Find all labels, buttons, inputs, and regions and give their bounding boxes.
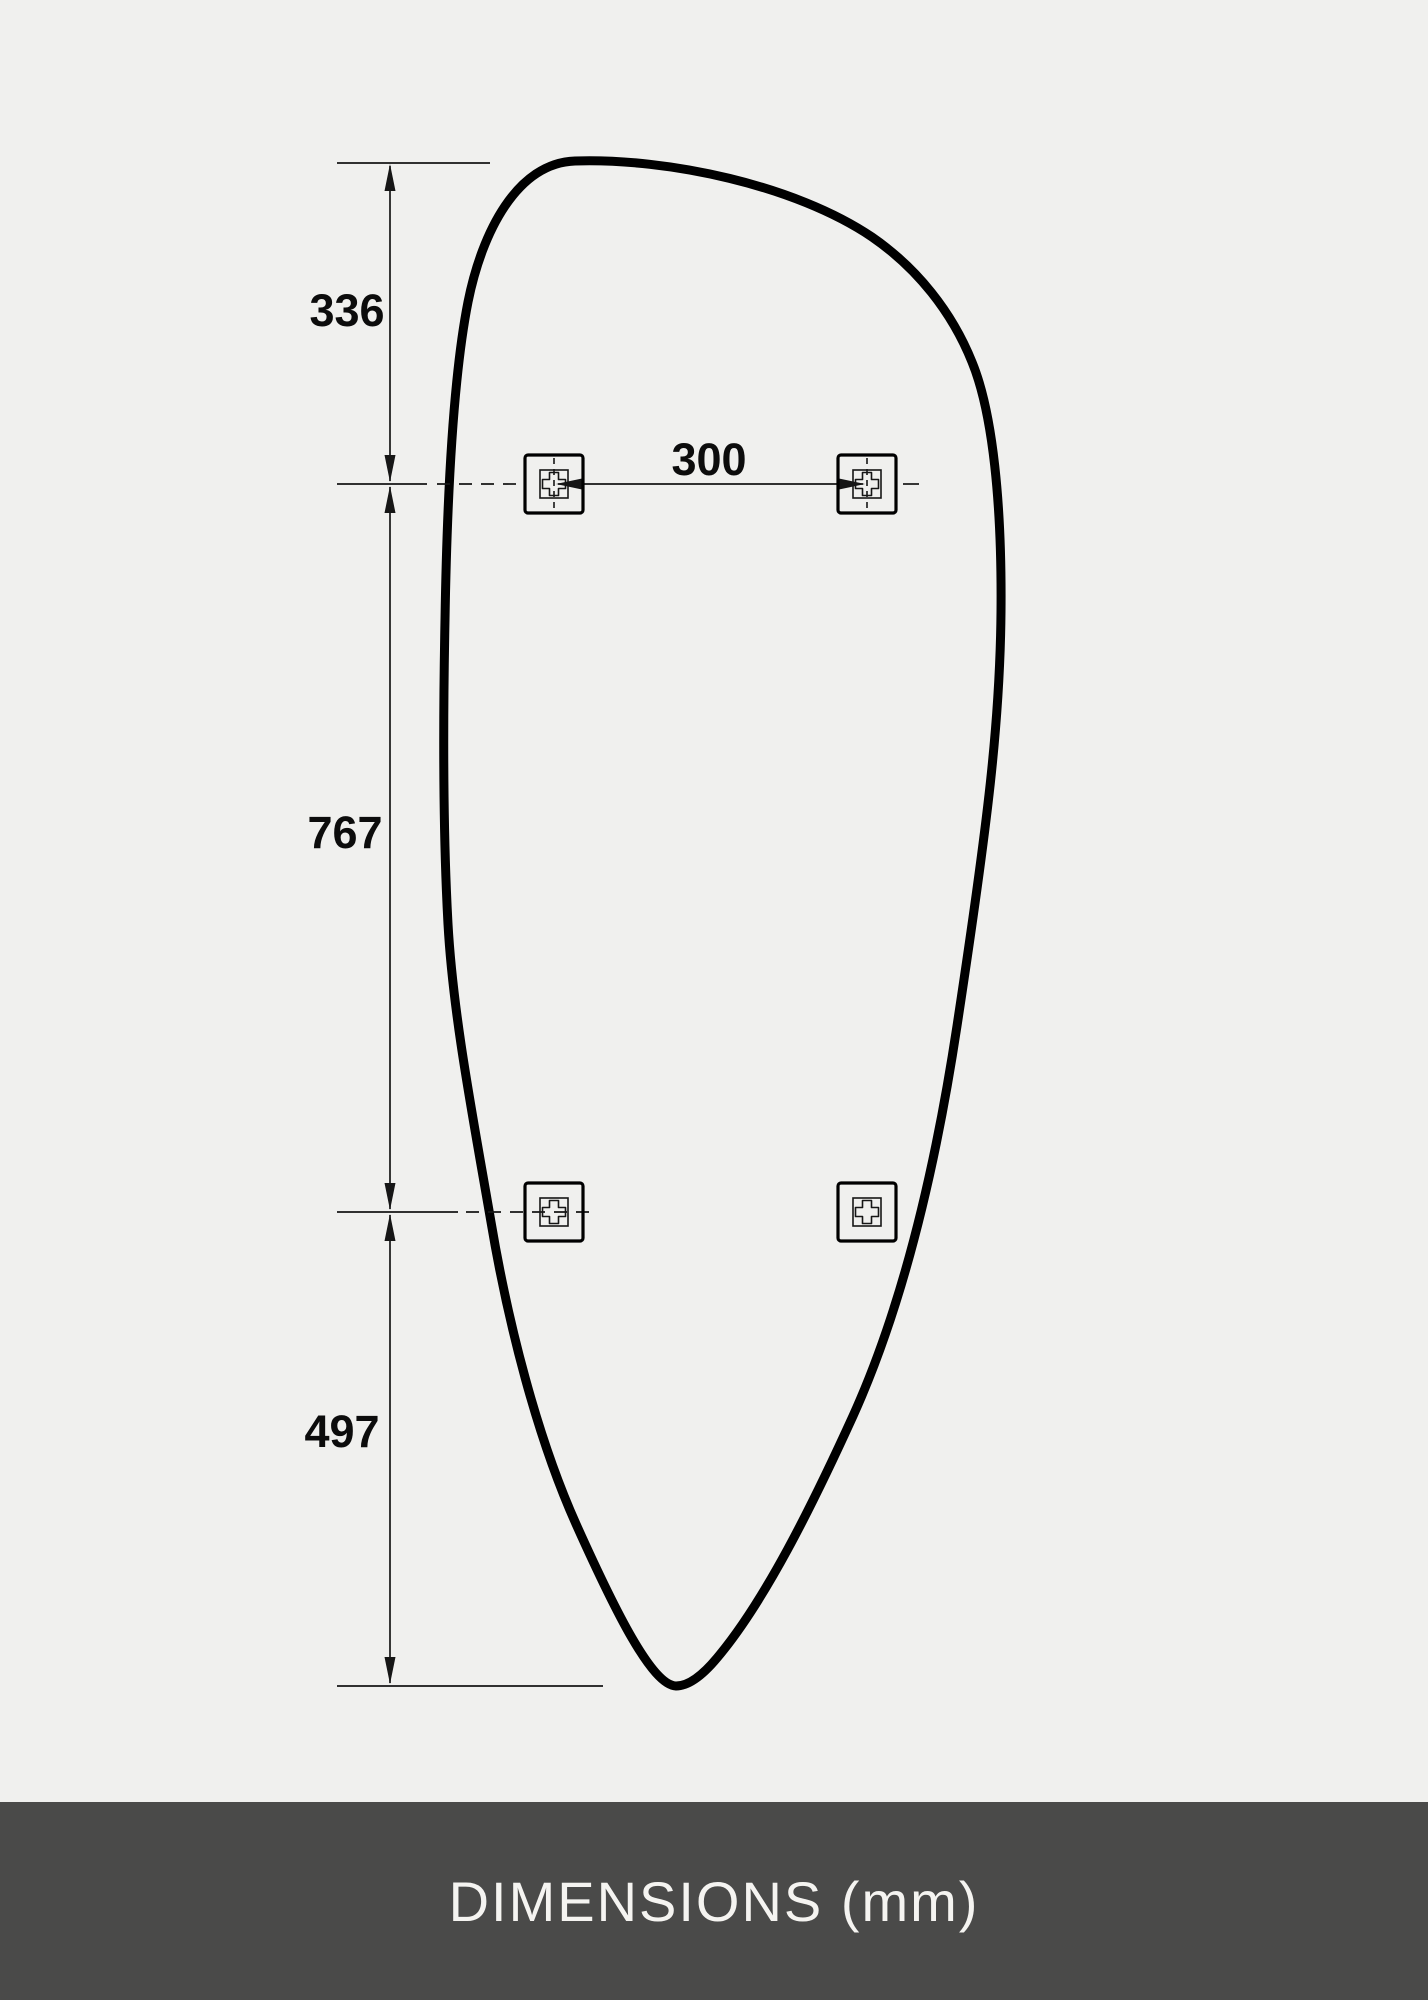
mirror-dimension-diagram: 336 767 497 300 [0,0,1428,2000]
footer-bar: DIMENSIONS (mm) [0,1802,1428,2000]
arrow-up-top [385,164,396,191]
arrow-down-upper [385,455,396,482]
dimension-sheet: 336 767 497 300 DIMENSIONS (mm) [0,0,1428,2000]
mounting-bracket-bottom-right [838,1183,896,1241]
dim-label-300: 300 [671,434,746,485]
arrow-down-middle [385,1183,396,1210]
footer-title: DIMENSIONS (mm) [449,1869,980,1934]
dim-label-767: 767 [307,807,382,858]
arrow-up-middle [385,486,396,513]
mirror-outline [444,161,1001,1686]
dim-label-336: 336 [309,285,384,336]
dim-label-497: 497 [304,1406,379,1457]
arrow-down-bottom [385,1657,396,1684]
arrow-up-lower [385,1214,396,1241]
